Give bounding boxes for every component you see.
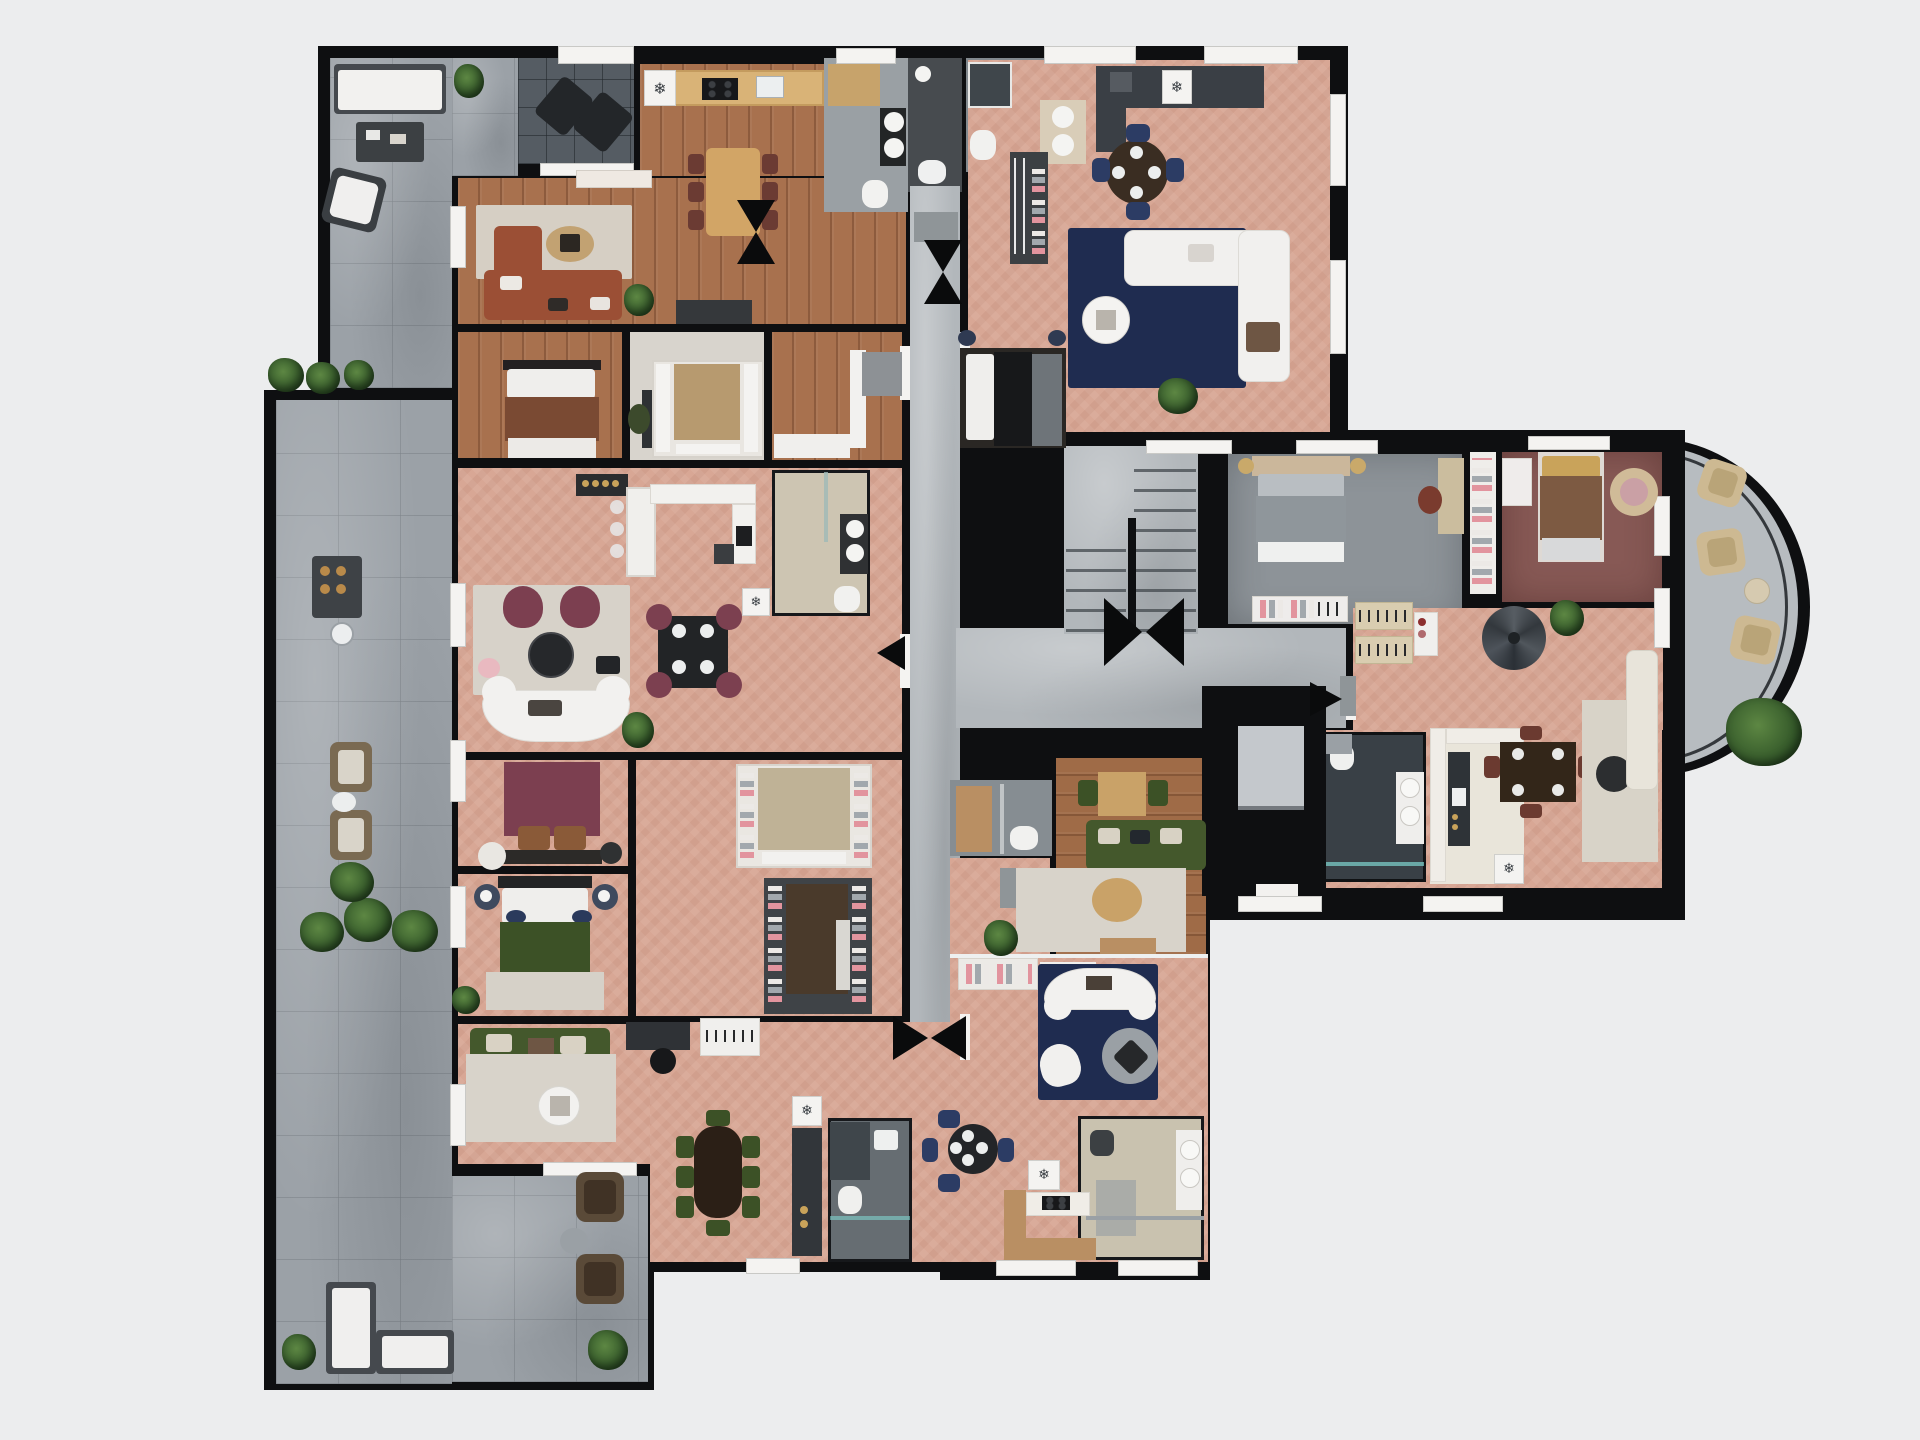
shrub-left-3 xyxy=(344,360,374,390)
apt-d-wine-dot-1 xyxy=(582,480,589,487)
apt-b-nightstand-1 xyxy=(958,330,976,346)
apt-f-bath-shower-glass xyxy=(1000,784,1004,854)
apt-d-dining-chair-3 xyxy=(646,672,672,698)
apt-a-chair-3 xyxy=(688,210,704,230)
wing-dining-plate-2 xyxy=(1552,748,1564,760)
apt-b-chair-east xyxy=(1166,158,1184,182)
apt-a-entry-mat xyxy=(862,352,902,396)
outdoor-sofa-cushion xyxy=(338,70,442,110)
apt-b-plant xyxy=(1158,378,1198,414)
apt-b-nightstand-2 xyxy=(1048,330,1066,346)
apt-e-chair-foot xyxy=(706,1220,730,1236)
apt-b-bed-blanket-gray xyxy=(1032,354,1062,446)
apt-b-bath-shower xyxy=(968,62,1012,108)
apt-d-closet-upper-inner xyxy=(758,768,850,850)
apt-a-closet-inner-floor xyxy=(674,364,740,440)
apt-d-nightstand-left xyxy=(478,842,506,870)
apt-b-sofa-throw xyxy=(1246,322,1280,352)
apt-e-desk xyxy=(626,1022,690,1050)
apt-a-sofa-chaise xyxy=(494,226,542,276)
wing-mauve-desk xyxy=(1502,458,1532,506)
window-left-3 xyxy=(450,740,466,802)
apt-f-round-plate-1 xyxy=(962,1130,974,1142)
apt-f-wardrobe-clothes xyxy=(962,964,1032,984)
apt-d-bed3-lamp-2 xyxy=(598,890,610,902)
apt-d-shower-glass xyxy=(824,472,828,542)
apt-d-closet-lower-clothes-left xyxy=(768,884,782,1006)
wing-wardrobe-strip-clothes xyxy=(1472,458,1492,588)
apt-f-bath-wood-pad xyxy=(956,786,992,852)
window-e-bottom-1 xyxy=(746,1258,800,1274)
apt-d-bed2-pillow-1 xyxy=(518,826,550,850)
apt-f-crescent-cap-left xyxy=(1044,992,1072,1020)
apt-d-sofa-crescent-cap-right xyxy=(596,676,630,708)
wing-dining-plate-4 xyxy=(1552,784,1564,796)
apt-a-bed-blanket xyxy=(505,397,599,441)
apt-d-rail-closet-rail xyxy=(706,1030,754,1042)
apt-f-dining-table-wood xyxy=(1098,772,1146,816)
apt-f-fridge-icon: ❄ xyxy=(1028,1160,1060,1190)
apt-b-chair-south xyxy=(1126,202,1150,220)
apt-b-chair-north xyxy=(1126,124,1150,142)
terrace-side-table xyxy=(332,792,356,812)
wing-dining-chair-top xyxy=(1520,726,1542,740)
apt-d-pouf xyxy=(478,658,500,678)
apt-d-bath-toilet xyxy=(834,586,860,612)
apt-a-sink xyxy=(756,76,784,98)
bbq-kettle xyxy=(330,622,354,646)
apt-a-bath-sink-2 xyxy=(884,138,904,158)
apt-a-sofa-pillow-1 xyxy=(500,276,522,290)
apt-d-plate-1 xyxy=(672,624,686,638)
apt-b-wardrobe-clothes xyxy=(1032,162,1045,258)
apt-e-shower-glass xyxy=(830,1216,910,1220)
apt-d-sofa-tray xyxy=(528,700,562,716)
apt-e-kitchen-gold-2 xyxy=(800,1220,808,1228)
apt-b-bath-sink-2 xyxy=(1052,134,1074,156)
apt-f-crescent-tray xyxy=(1086,976,1112,990)
wing-gray-bed-pillows xyxy=(1258,474,1344,498)
wing-dining-plate-3 xyxy=(1512,784,1524,796)
apt-f-plant xyxy=(984,920,1018,956)
apt-a-media-console xyxy=(676,300,752,324)
apt-e-bath-toilet xyxy=(838,1186,862,1214)
apt-f-green-sofa-cushion-1 xyxy=(1098,828,1120,844)
fern-3 xyxy=(392,910,438,952)
wing-console-deco-2 xyxy=(1418,630,1426,638)
apt-b-fridge-icon: ❄ xyxy=(1162,70,1192,104)
bbq-burner-2 xyxy=(336,566,346,576)
apt-e-sofa-cushion-2 xyxy=(560,1036,586,1054)
apt-d-armchair-1 xyxy=(503,586,543,628)
apt-f-round-plate-4 xyxy=(976,1142,988,1154)
window-e-bottom-3 xyxy=(1118,1260,1198,1276)
apt-b-plate-1 xyxy=(1130,146,1143,159)
terrace-brown-chair-2-cushion xyxy=(584,1262,616,1296)
apt-b-bed-pillows xyxy=(966,354,994,440)
apt-b-plate-3 xyxy=(1112,166,1125,179)
wing-mauve-bed-blanket xyxy=(1540,476,1602,540)
wing-dining-plate-1 xyxy=(1512,748,1524,760)
wing-entry-mat xyxy=(1340,676,1356,716)
apt-d-dining-chair-1 xyxy=(646,604,672,630)
balcony-palm xyxy=(1726,698,1802,766)
apt-e-chair-head xyxy=(706,1110,730,1126)
fern-4 xyxy=(330,862,374,902)
apt-d-closet-upper-clothes-right xyxy=(854,768,868,862)
apt-a-closet-clothes-right xyxy=(744,364,758,452)
apt-f-coffee-table xyxy=(1092,878,1142,922)
outdoor-table-deco-2 xyxy=(390,134,406,144)
apt-e-dining-table xyxy=(694,1126,742,1218)
apt-d-oven xyxy=(714,544,734,564)
balcony-chair-2-cushion xyxy=(1706,536,1738,568)
apt-f-navy-chair-1 xyxy=(938,1110,960,1128)
window-wing-right-1 xyxy=(1654,496,1670,556)
apt-e-chair-1 xyxy=(676,1136,694,1158)
apt-d-armchair-2 xyxy=(560,586,600,628)
apt-f-dining-chair-1 xyxy=(1078,780,1098,806)
apt-e-chair-2 xyxy=(676,1166,694,1188)
wing-fridge-icon: ❄ xyxy=(1494,854,1524,884)
apt-a-side-table xyxy=(560,234,580,252)
balcony-side-table xyxy=(1744,578,1770,604)
apt-a-sofa-pillow-3 xyxy=(590,297,610,310)
terrace-corner-sofa-cushion xyxy=(332,1288,370,1368)
apt-a-bath-slat-pad xyxy=(828,64,880,106)
apt-f-round-plate-2 xyxy=(962,1154,974,1166)
window-top-4 xyxy=(1204,46,1298,64)
plant-terrace-bottom-2 xyxy=(282,1334,316,1370)
apt-d-bed2-headboard xyxy=(504,762,600,836)
bbq-burner-3 xyxy=(320,584,330,594)
outdoor-table-deco-1 xyxy=(366,130,380,140)
wing-gray-desk xyxy=(1438,458,1464,534)
apt-d-closet-lower-clothes-right xyxy=(852,884,866,1006)
apt-e-sofa-tray xyxy=(528,1038,554,1054)
window-left-4 xyxy=(450,886,466,948)
apt-a-chair-5 xyxy=(762,182,778,202)
apt-e-desk-chair xyxy=(650,1048,676,1074)
apt-b-plate-4 xyxy=(1148,166,1161,179)
floor-plan-canvas: ❄❄❄❄❄❄ xyxy=(0,0,1920,1440)
apt-f-green-sofa-cushion-2 xyxy=(1160,828,1182,844)
apt-e-chair-6 xyxy=(742,1196,760,1218)
apt-d-counter-top xyxy=(650,484,756,504)
wing-papasan-cushion xyxy=(1620,478,1648,506)
wing-mauve-bed-sheet xyxy=(1542,538,1600,560)
shower-room-head xyxy=(915,66,931,82)
apt-e-sofa-cushion-1 xyxy=(486,1034,512,1052)
window-wing-top-1 xyxy=(1146,440,1232,454)
apt-f-round-plate-3 xyxy=(950,1142,962,1154)
apt-f-bath-sink-2 xyxy=(1180,1168,1200,1188)
wing-gray-wardrobe-clothes xyxy=(1256,600,1314,618)
apt-d-stool-3 xyxy=(610,544,624,558)
apt-d-stove xyxy=(736,526,752,546)
apt-d-bed3-rug xyxy=(486,972,604,1010)
window-wing-bottom-2 xyxy=(1423,896,1503,912)
apt-b-kitchen-sink xyxy=(1110,72,1132,92)
apt-d-bed2-pillow-2 xyxy=(554,826,586,850)
apt-d-plant xyxy=(622,712,654,748)
apt-a-chair-1 xyxy=(688,154,704,174)
wing-gray-wardrobe-rail xyxy=(1318,602,1344,616)
apt-a-closet-clothes-left xyxy=(656,364,670,452)
terrace-brown-chair-1-cushion xyxy=(584,1180,616,1214)
window-top-2 xyxy=(836,48,896,64)
apt-d-bath-sink-2 xyxy=(846,544,864,562)
window-left-5 xyxy=(450,1084,466,1146)
wing-bath-cabinet xyxy=(1326,734,1352,754)
apt-f-dining-chair-2 xyxy=(1148,780,1168,806)
apt-d-nightstand-right xyxy=(600,842,622,864)
apt-f-navy-chair-2 xyxy=(938,1174,960,1192)
apt-e-bath-sink xyxy=(874,1130,898,1150)
apt-a-wardrobe-clothes-row xyxy=(774,434,850,458)
apt-b-bath-sink-1 xyxy=(1052,106,1074,128)
apt-b-coffee-table-deco xyxy=(1096,310,1116,330)
apt-d-stool-1 xyxy=(610,500,624,514)
apt-f-bath-toilet xyxy=(1010,826,1038,850)
apt-f-crescent-cap-right xyxy=(1128,992,1156,1020)
apt-d-plate-2 xyxy=(700,624,714,638)
apt-a-bed-sheet xyxy=(508,438,596,458)
wing-kitchen-gold-1 xyxy=(1452,814,1458,820)
apt-f-navy-chair-4 xyxy=(998,1138,1014,1162)
shower-room-toilet xyxy=(918,160,946,184)
wing-spiral-center xyxy=(1508,632,1520,644)
wing-entry-closet-2-rail xyxy=(1359,644,1409,656)
plant-terrace-bottom-1 xyxy=(588,1330,628,1370)
apt-d-plate-3 xyxy=(672,660,686,674)
apt-e-chair-4 xyxy=(742,1136,760,1158)
wing-gray-bed-headboard xyxy=(1252,456,1350,476)
wing-sofa xyxy=(1626,650,1658,790)
wing-gray-bed-lamp-1 xyxy=(1238,458,1254,474)
apt-e-kitchen-gold-1 xyxy=(800,1206,808,1214)
apt-b-wardrobe-rail xyxy=(1014,158,1028,254)
apt-a-fridge-icon: ❄ xyxy=(644,70,676,106)
apt-d-bed3-lamp-1 xyxy=(480,890,492,902)
apt-f-bench xyxy=(1100,938,1156,954)
apt-a-bath-toilet xyxy=(862,180,888,208)
apt-a-sofa-pillow-2 xyxy=(548,298,568,311)
apt-f-bath-mat xyxy=(1096,1180,1136,1236)
apt-d-stool-2 xyxy=(610,522,624,536)
shrub-left-1 xyxy=(268,358,304,392)
wicker-chair-1-cushion xyxy=(338,750,364,784)
apt-a-bath-sink-1 xyxy=(884,112,904,132)
apt-b-bed-blanket-dark xyxy=(994,352,1032,446)
apt-d-dining-chair-4 xyxy=(716,672,742,698)
window-b-right-2 xyxy=(1330,260,1346,354)
apt-b-bath-toilet xyxy=(970,130,996,160)
elevator-car xyxy=(1238,726,1304,810)
apt-a-closet-rail xyxy=(676,444,740,454)
apt-f-kitchen-counter-wood-bottom xyxy=(1004,1238,1096,1260)
apt-a-bookshelf xyxy=(576,170,652,188)
apt-d-coffee-table xyxy=(528,632,574,678)
window-top-1 xyxy=(558,46,634,64)
apt-d-wine-dot-3 xyxy=(602,480,609,487)
apt-f-bath-sink-1 xyxy=(1180,1140,1200,1160)
wing-dining-chair-bottom xyxy=(1520,804,1542,818)
apt-d-bath-sink-1 xyxy=(846,520,864,538)
apt-d-wine-dot-4 xyxy=(612,480,619,487)
wing-kitchen-gold-2 xyxy=(1452,824,1458,830)
stair-divider-wall xyxy=(1128,518,1136,634)
apt-a-chair-4 xyxy=(762,154,778,174)
apt-b-chair-west xyxy=(1092,158,1110,182)
fern-5 xyxy=(452,986,480,1014)
apt-d-bed2-frame xyxy=(502,850,602,864)
apt-a-chair-2 xyxy=(688,182,704,202)
apt-a-hob xyxy=(702,78,738,100)
apt-d-sofa-crescent-cap-left xyxy=(482,676,516,708)
apt-a-desk-chair xyxy=(628,404,650,434)
apt-e-coffee-table-deco xyxy=(550,1096,570,1116)
apt-d-closet-lower-rail xyxy=(836,920,850,990)
apt-b-plate-2 xyxy=(1130,186,1143,199)
wing-bath-shower-glass xyxy=(1326,862,1424,866)
window-top-3 xyxy=(1044,46,1136,64)
apt-d-bed3-headboard xyxy=(498,876,592,888)
wing-entry-closet-1-rail xyxy=(1359,610,1409,622)
apt-a-bed-pillows xyxy=(507,369,595,399)
wing-gray-bed-sheet xyxy=(1258,542,1344,562)
apt-e-chair-5 xyxy=(742,1166,760,1188)
wing-plant xyxy=(1550,600,1584,636)
elevator-door-line xyxy=(1238,806,1304,810)
apt-d-dining-chair-2 xyxy=(716,604,742,630)
terrace-sofa-cushion xyxy=(382,1336,448,1368)
window-wing-bottom-1 xyxy=(1238,896,1322,912)
balcony-chair-3-cushion xyxy=(1739,623,1772,656)
apt-d-wine-dot-2 xyxy=(592,480,599,487)
fern-2 xyxy=(344,898,392,942)
wicker-chair-2-cushion xyxy=(338,818,364,852)
apt-e-fridge-icon: ❄ xyxy=(792,1096,822,1126)
window-b-right-1 xyxy=(1330,94,1346,186)
wing-kitchen-sink xyxy=(1452,788,1466,806)
bbq-burner-4 xyxy=(336,584,346,594)
wing-mauve-bed-pillows xyxy=(1542,456,1600,478)
window-left-2 xyxy=(450,583,466,647)
apt-f-green-sofa-cushion-3 xyxy=(1130,830,1150,844)
stair-flight-right xyxy=(1134,452,1196,632)
apt-d-closet-upper-clothes-left xyxy=(740,768,754,862)
apt-f-bath-shower-line xyxy=(1086,1216,1204,1220)
terrace-round-table xyxy=(560,1228,588,1254)
elevator-threshold xyxy=(1256,884,1298,896)
shrub-left-2 xyxy=(306,362,340,394)
plant-living-a xyxy=(624,284,654,316)
apt-e-chair-3 xyxy=(676,1196,694,1218)
wing-gray-bed-blanket xyxy=(1256,496,1346,544)
window-wing-right-2 xyxy=(1654,588,1670,648)
apt-d-side-table xyxy=(596,656,620,674)
apt-b-sofa-arm-right xyxy=(1238,230,1290,382)
apt-f-navy-chair-3 xyxy=(922,1138,938,1162)
window-wing-top-3 xyxy=(1528,436,1610,450)
window-wing-top-2 xyxy=(1296,440,1378,454)
window-e-bottom-2 xyxy=(996,1260,1076,1276)
apt-f-bath-toilet-dark xyxy=(1090,1130,1114,1156)
window-left-1 xyxy=(450,206,466,268)
wing-gray-bed-lamp-2 xyxy=(1350,458,1366,474)
wing-bath-sink-1 xyxy=(1400,778,1420,798)
apt-d-closet-upper-rail xyxy=(762,852,846,864)
apt-d-plate-4 xyxy=(700,660,714,674)
wing-console-deco-1 xyxy=(1418,618,1426,626)
fern-1 xyxy=(300,912,344,952)
apt-f-kitchen-hob xyxy=(1042,1196,1070,1210)
apt-d-fridge-icon: ❄ xyxy=(742,588,770,616)
wing-kitchen-counter-left xyxy=(1430,728,1446,882)
apt-b-sofa-pillow xyxy=(1188,244,1214,262)
apt-e-kitchen-counter xyxy=(792,1128,822,1256)
plant-terrace-top xyxy=(454,64,484,98)
bbq-burner-1 xyxy=(320,566,330,576)
corridor-entry-mat xyxy=(914,212,958,242)
wing-gray-desk-chair xyxy=(1418,486,1442,514)
wing-dining-chair-left xyxy=(1484,756,1500,778)
wing-bath-sink-2 xyxy=(1400,806,1420,826)
apt-e-bath-dark-zone xyxy=(830,1122,870,1180)
